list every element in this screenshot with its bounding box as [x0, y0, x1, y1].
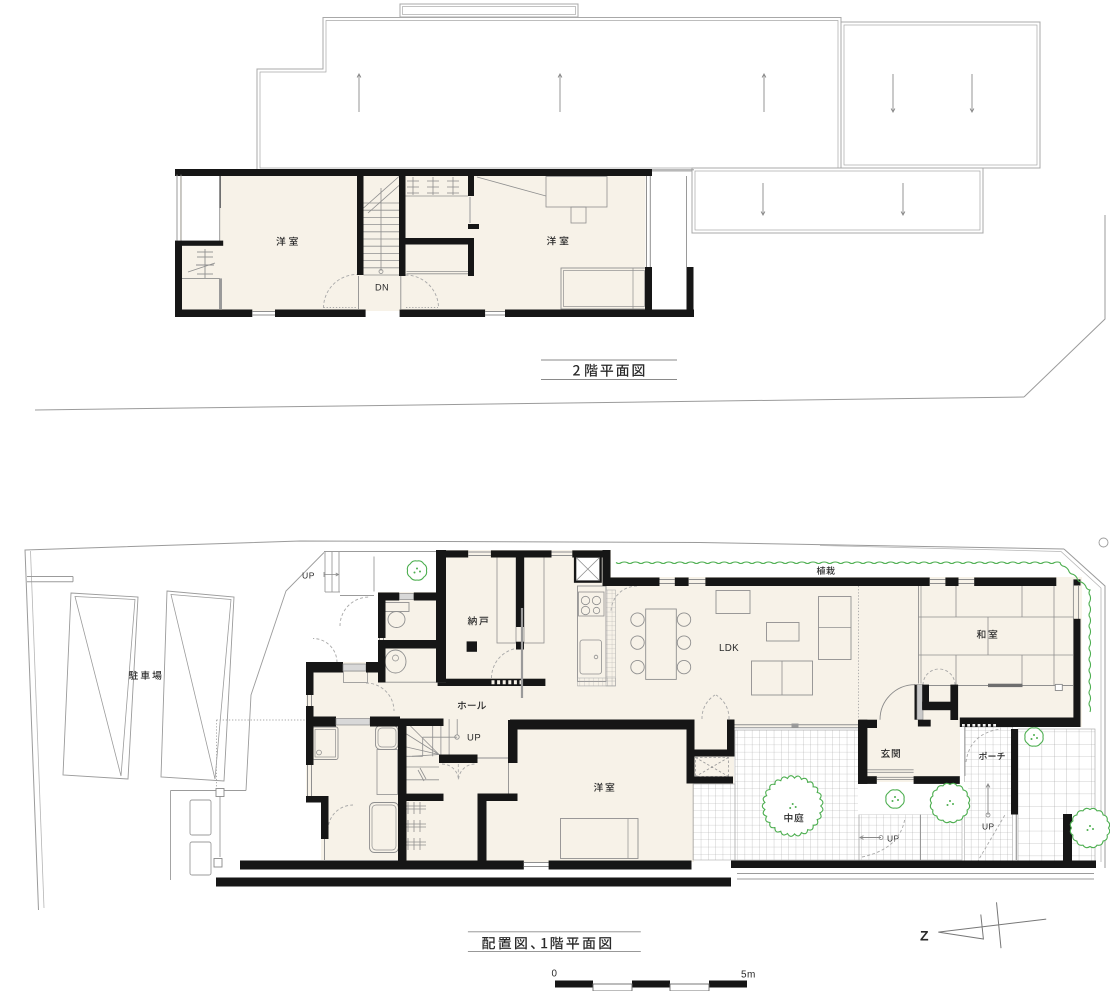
svg-text:Z: Z — [920, 928, 929, 944]
svg-text:UP: UP — [982, 822, 995, 832]
svg-text:UP: UP — [467, 733, 481, 744]
svg-text:UP: UP — [302, 571, 315, 581]
svg-text:0: 0 — [552, 969, 558, 980]
svg-text:5m: 5m — [741, 970, 756, 981]
svg-text:LDK: LDK — [719, 643, 739, 654]
svg-text:DN: DN — [375, 283, 389, 293]
svg-text:UP: UP — [887, 834, 900, 844]
